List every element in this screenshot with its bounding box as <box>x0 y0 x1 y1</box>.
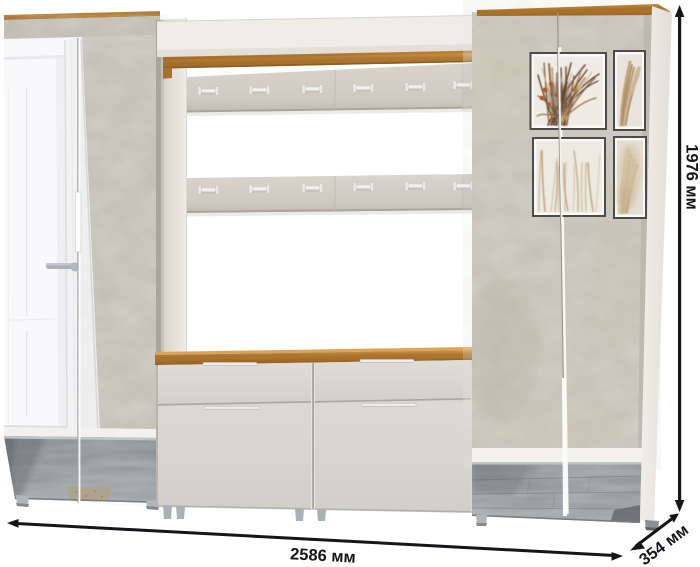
svg-text:2586 мм: 2586 мм <box>290 545 357 566</box>
svg-text:1976 мм: 1976 мм <box>683 144 700 210</box>
